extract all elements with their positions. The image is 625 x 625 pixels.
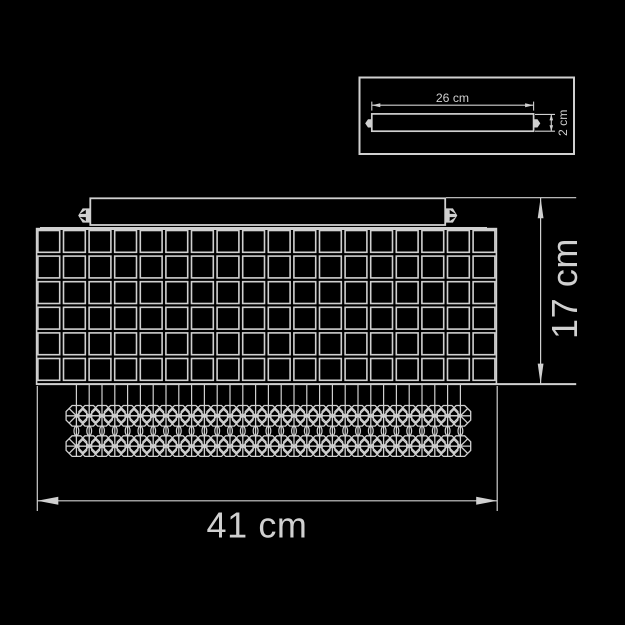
svg-text:26 cm: 26 cm bbox=[436, 91, 469, 105]
svg-text:17 cm: 17 cm bbox=[544, 238, 585, 339]
svg-text:41 cm: 41 cm bbox=[206, 505, 307, 546]
svg-text:2 cm: 2 cm bbox=[556, 110, 570, 136]
